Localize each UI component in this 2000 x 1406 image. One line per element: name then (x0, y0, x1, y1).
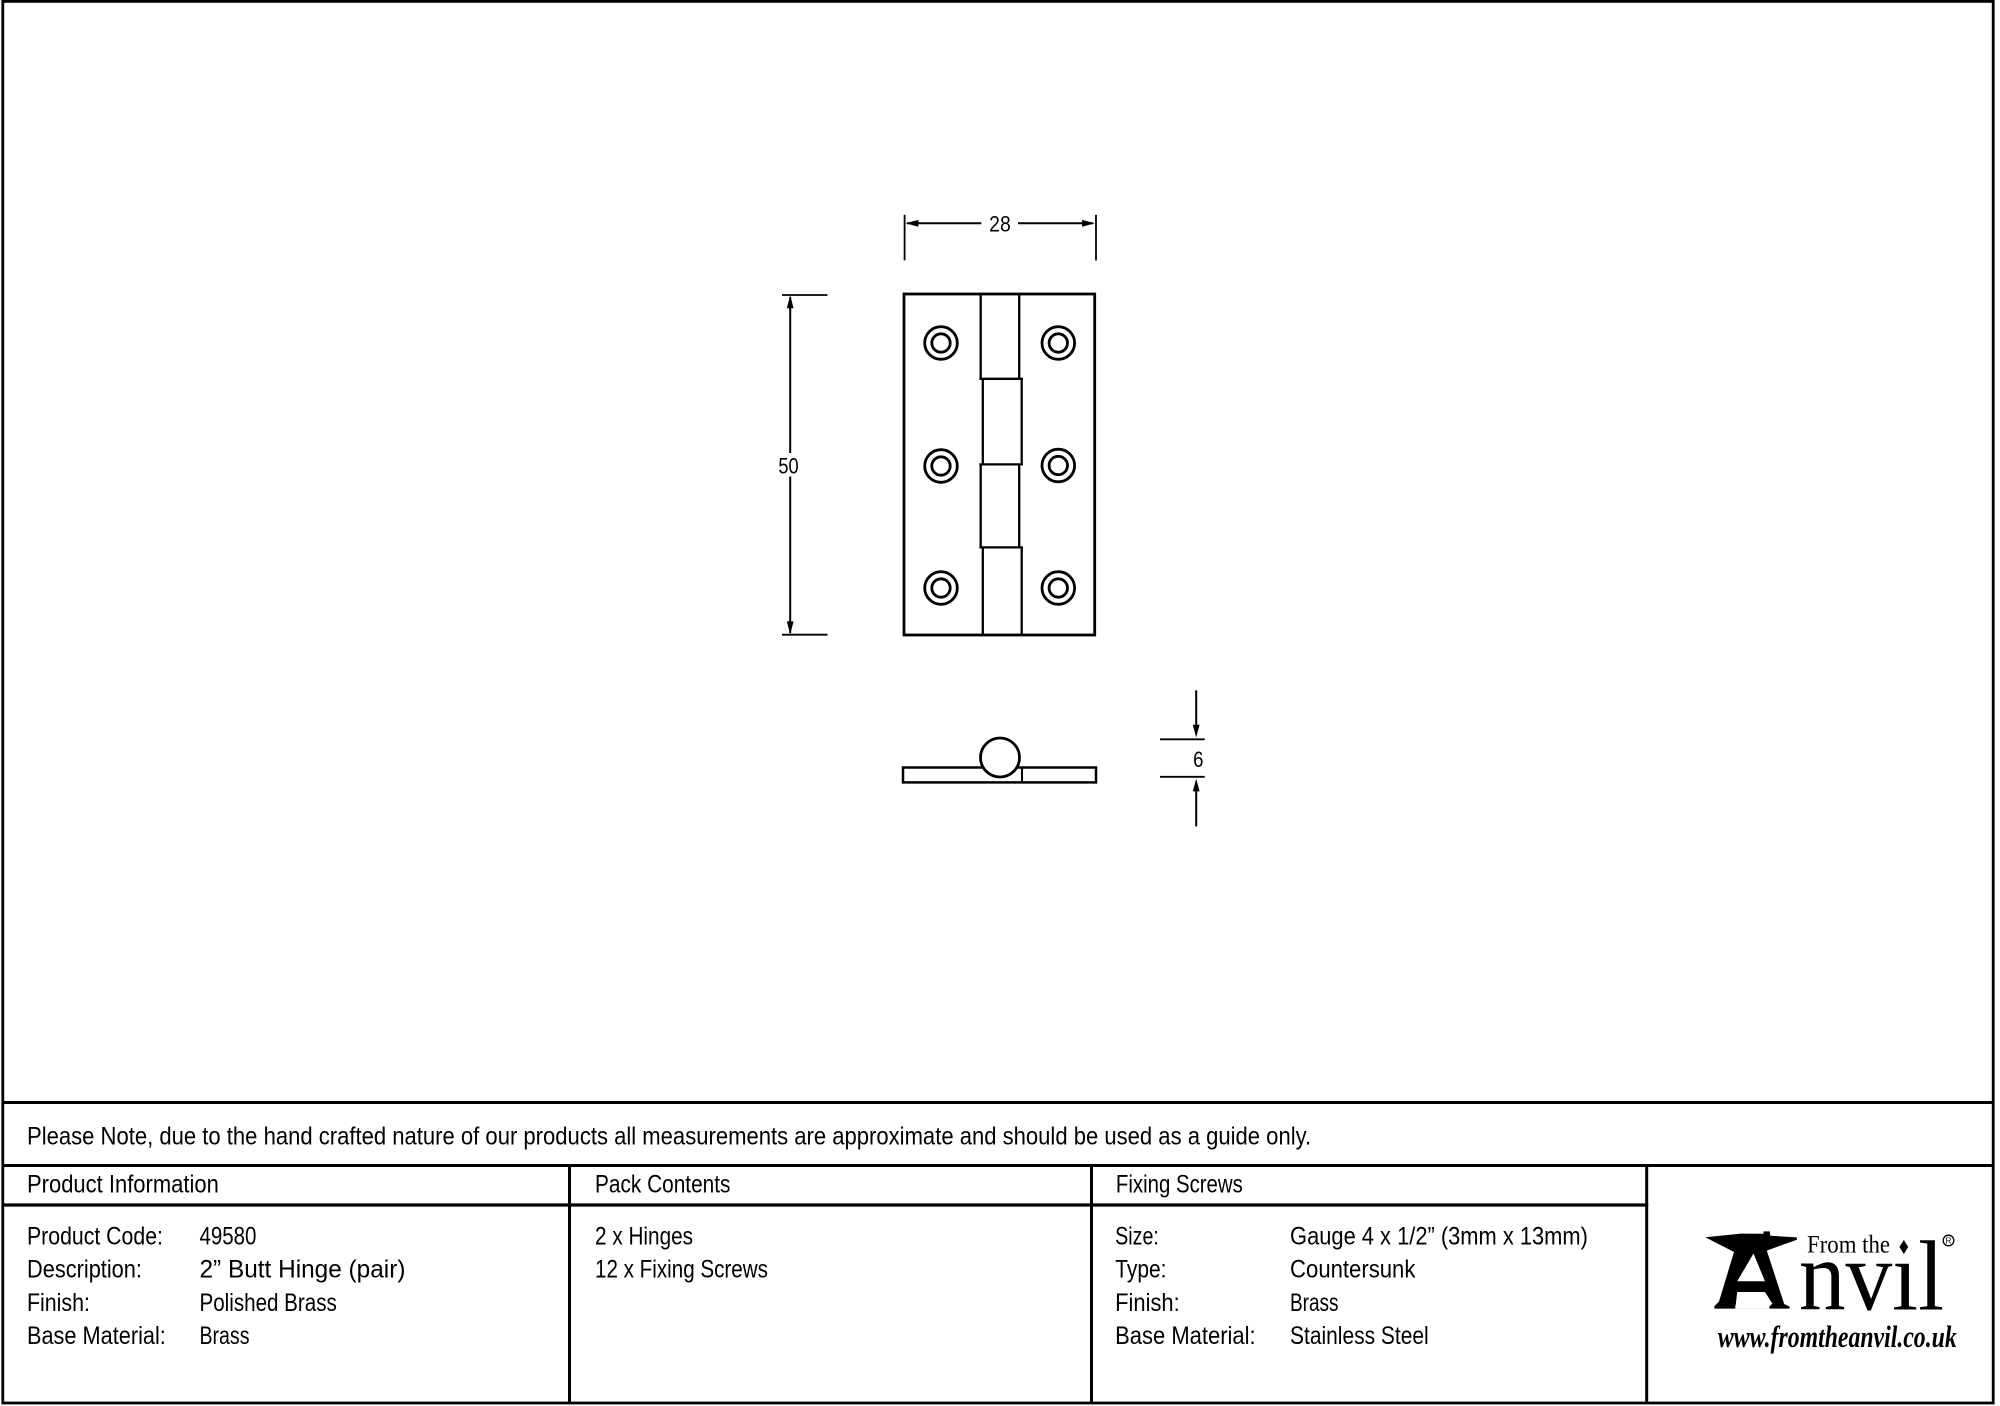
svg-text:Base Material:: Base Material: (1115, 1322, 1256, 1350)
svg-text:Countersunk: Countersunk (1290, 1256, 1416, 1284)
svg-text:6: 6 (1193, 749, 1203, 773)
svg-text:Description:: Description: (27, 1255, 142, 1283)
svg-text:2 x Hinges: 2 x Hinges (595, 1221, 693, 1249)
svg-text:Polished Brass: Polished Brass (200, 1288, 337, 1316)
svg-text:12 x Fixing Screws: 12 x Fixing Screws (595, 1255, 768, 1283)
svg-text:Product Code:: Product Code: (27, 1222, 163, 1250)
svg-text:Type:: Type: (1115, 1255, 1166, 1283)
svg-text:Base Material:: Base Material: (27, 1322, 166, 1350)
svg-text:Fixing Screws: Fixing Screws (1116, 1169, 1243, 1197)
svg-text:Brass: Brass (200, 1322, 250, 1350)
svg-text:2” Butt Hinge (pair): 2” Butt Hinge (pair) (200, 1256, 406, 1283)
svg-text:www.fromtheanvil.co.uk: www.fromtheanvil.co.uk (1718, 1319, 1957, 1354)
svg-text:Finish:: Finish: (1115, 1288, 1180, 1316)
svg-text:28: 28 (989, 212, 1011, 236)
svg-text:Product Information: Product Information (27, 1170, 219, 1198)
svg-text:nvıl: nvıl (1799, 1221, 1944, 1332)
svg-text:Pack Contents: Pack Contents (595, 1170, 730, 1198)
svg-text:Finish:: Finish: (27, 1288, 90, 1316)
svg-text:50: 50 (778, 455, 798, 479)
svg-text:R: R (1946, 1236, 1952, 1245)
svg-text:Brass: Brass (1290, 1288, 1338, 1316)
svg-text:Size:: Size: (1115, 1222, 1159, 1250)
svg-text:Please Note, due to the hand c: Please Note, due to the hand crafted nat… (27, 1122, 1311, 1150)
svg-text:Gauge 4 x 1/2” (3mm x 13mm): Gauge 4 x 1/2” (3mm x 13mm) (1290, 1222, 1588, 1250)
svg-text:49580: 49580 (199, 1221, 256, 1249)
svg-text:Stainless Steel: Stainless Steel (1290, 1321, 1429, 1349)
